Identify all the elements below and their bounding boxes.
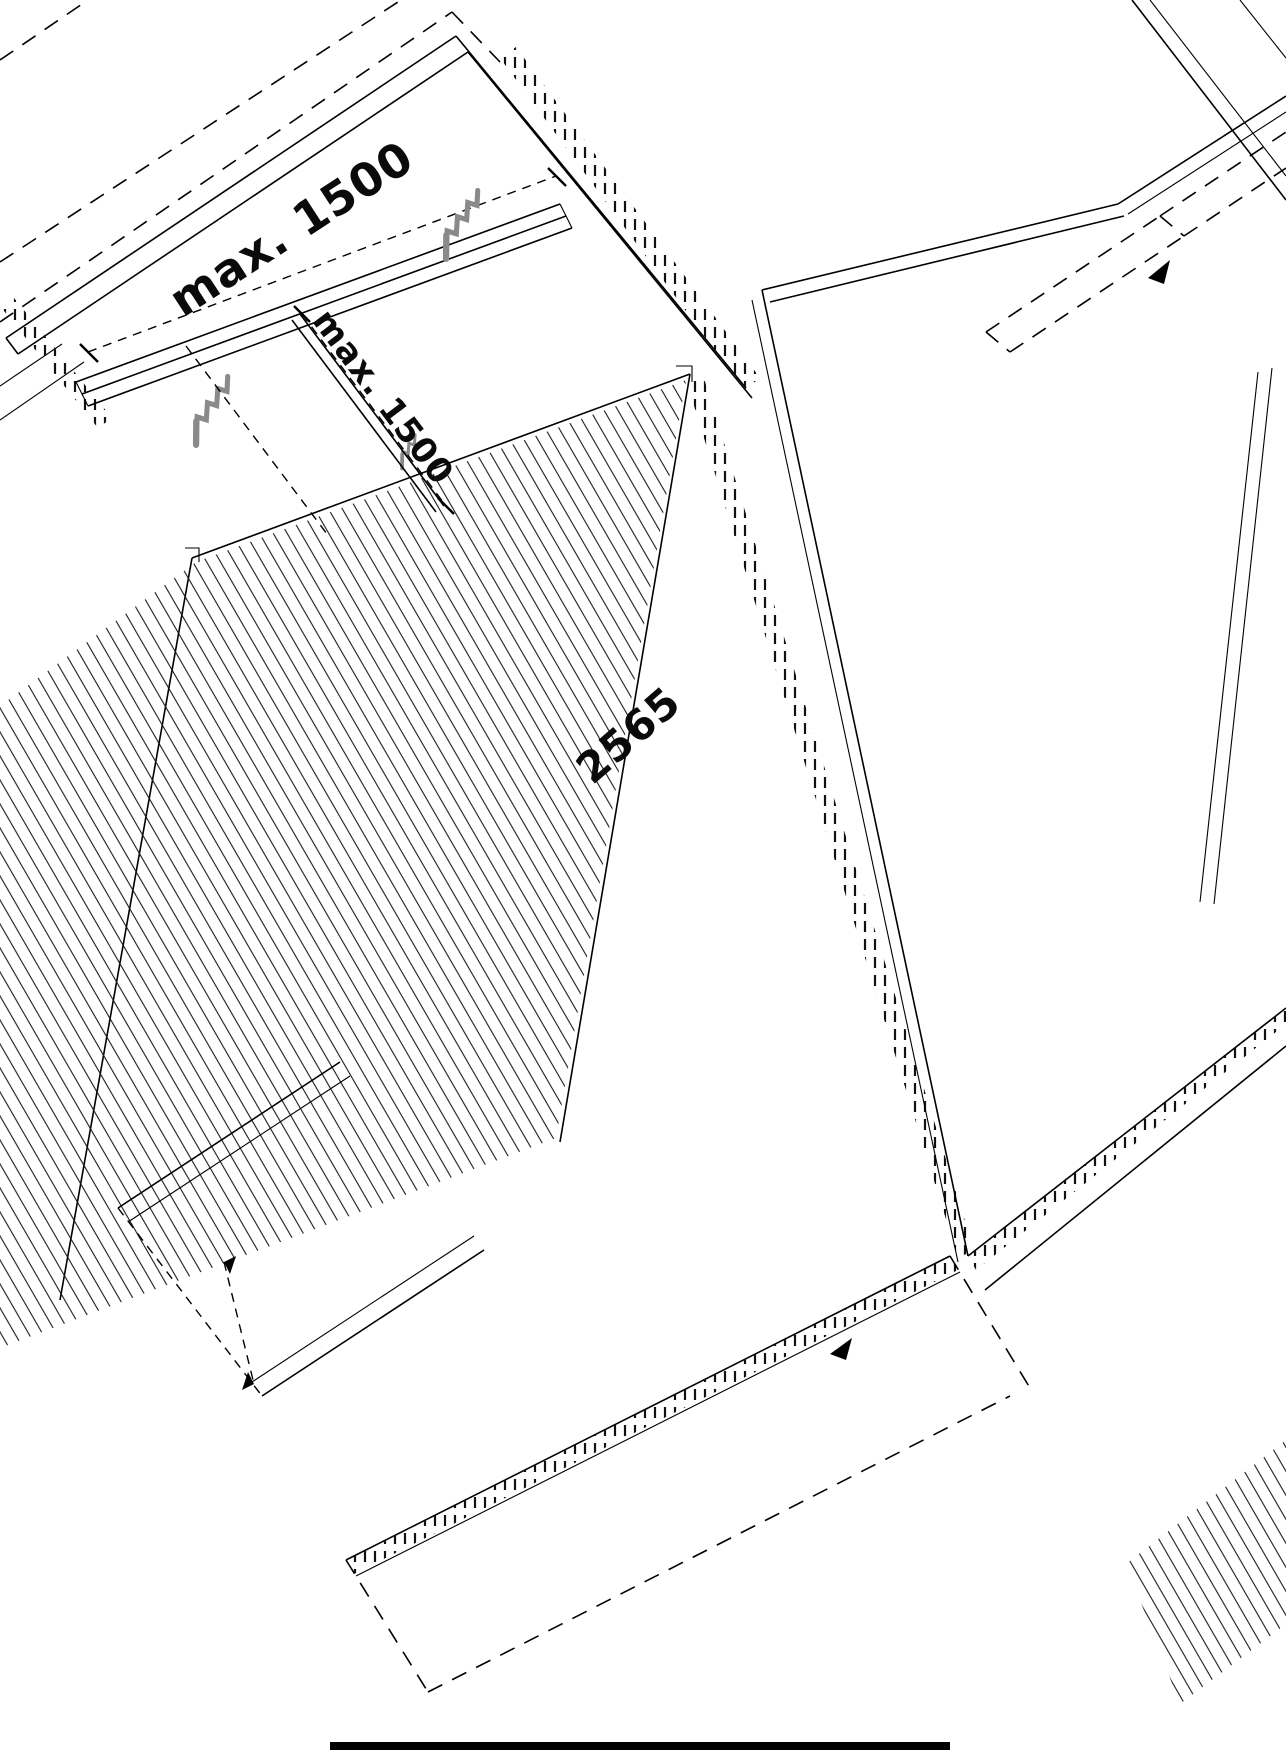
phantom-top-right-rail [986,132,1286,352]
right-panel [752,0,1286,1270]
panel-face-grain [1126,1440,1286,1704]
panel-face-grain [0,380,686,1348]
direction-arrow-icon [1148,260,1170,284]
bottom-edge-bar [330,1742,950,1750]
direction-arrow-icon [830,1338,852,1360]
screw-icon [174,376,249,444]
edge-hatch-band [968,1008,1286,1270]
isometric-assembly-diagram: max. 1500 max. 1500 [0,0,1286,1750]
central-panel [0,366,974,1348]
screw-icon [424,190,499,258]
dimension-label-max-1500-middle: max. 1500 [304,302,462,493]
edge-hatch-band [686,372,974,1258]
assembly-drawing-page: max. 1500 max. 1500 [0,0,1286,1750]
edge-hatch-band [500,47,760,390]
edge-hatch-band [346,1256,958,1574]
